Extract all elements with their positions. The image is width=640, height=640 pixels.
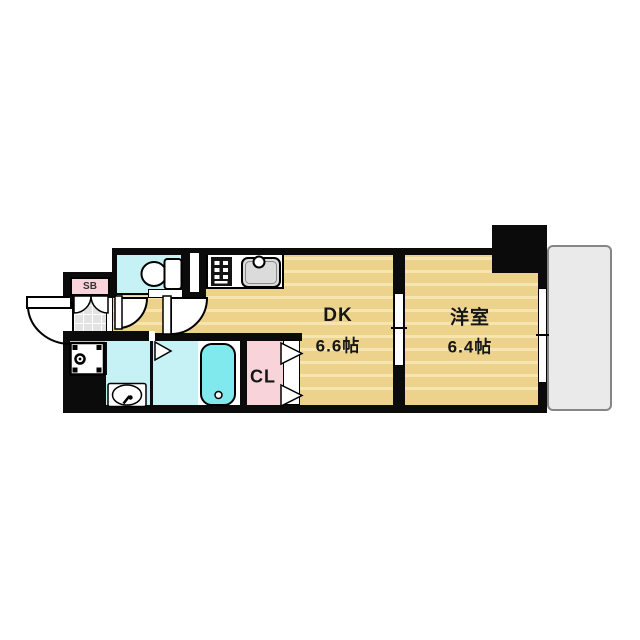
dk-door-arc-icon [171,298,207,334]
stove-icon [211,257,232,286]
fixtures-overlay [0,0,640,640]
floor-plan: SB [0,0,640,640]
dk-door-leaf-icon [163,296,171,334]
toilet-bowl-icon [142,262,167,286]
dk-label: DK [323,305,352,327]
bath-door-triangle-icon [155,342,171,360]
washbasin-icon [108,384,146,407]
western-room-area-label: 6.4帖 [448,333,493,358]
dk-area-label: 6.6帖 [316,332,361,357]
toilet-tank-icon [165,259,182,289]
washing-machine-pan-icon [71,343,105,375]
entrance-door-arc-icon [28,308,70,344]
shoebox-door-left-icon [74,296,91,313]
closet-label: CL [250,367,276,388]
closet-door-triangle-top-icon [281,343,302,364]
closet-door-triangle-bottom-icon [281,385,302,406]
toilet-door-leaf-icon [115,296,122,329]
western-room-label: 洋室 [450,303,490,330]
sink-faucet-icon [254,257,265,268]
entrance-door-leaf-icon [27,297,71,308]
shoebox-door-right-icon [91,296,108,313]
bathtub-drain-icon [215,392,222,399]
